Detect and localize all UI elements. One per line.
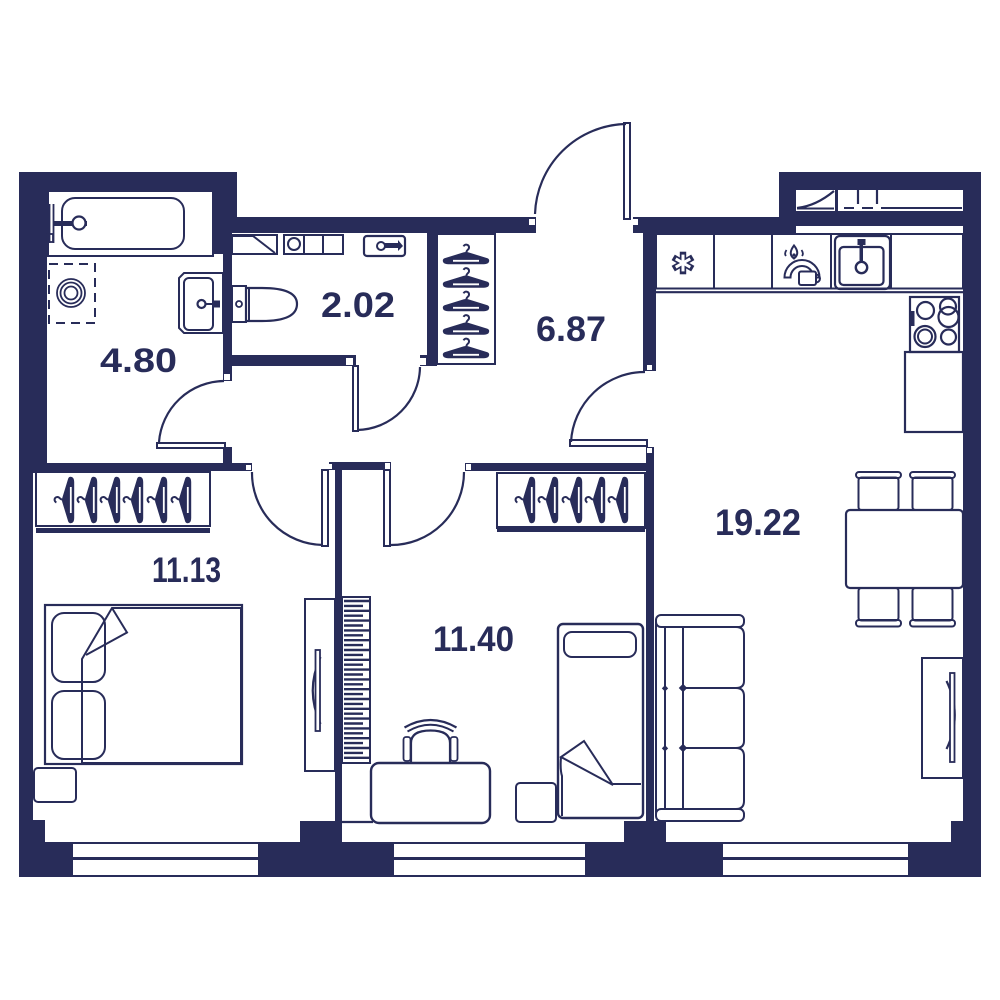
svg-text:6.87: 6.87 [536, 310, 606, 349]
svg-text:11.40: 11.40 [433, 620, 514, 659]
svg-text:2.02: 2.02 [321, 286, 395, 325]
svg-text:11.13: 11.13 [152, 551, 221, 590]
svg-text:4.80: 4.80 [100, 342, 177, 380]
svg-text:19.22: 19.22 [715, 502, 801, 543]
